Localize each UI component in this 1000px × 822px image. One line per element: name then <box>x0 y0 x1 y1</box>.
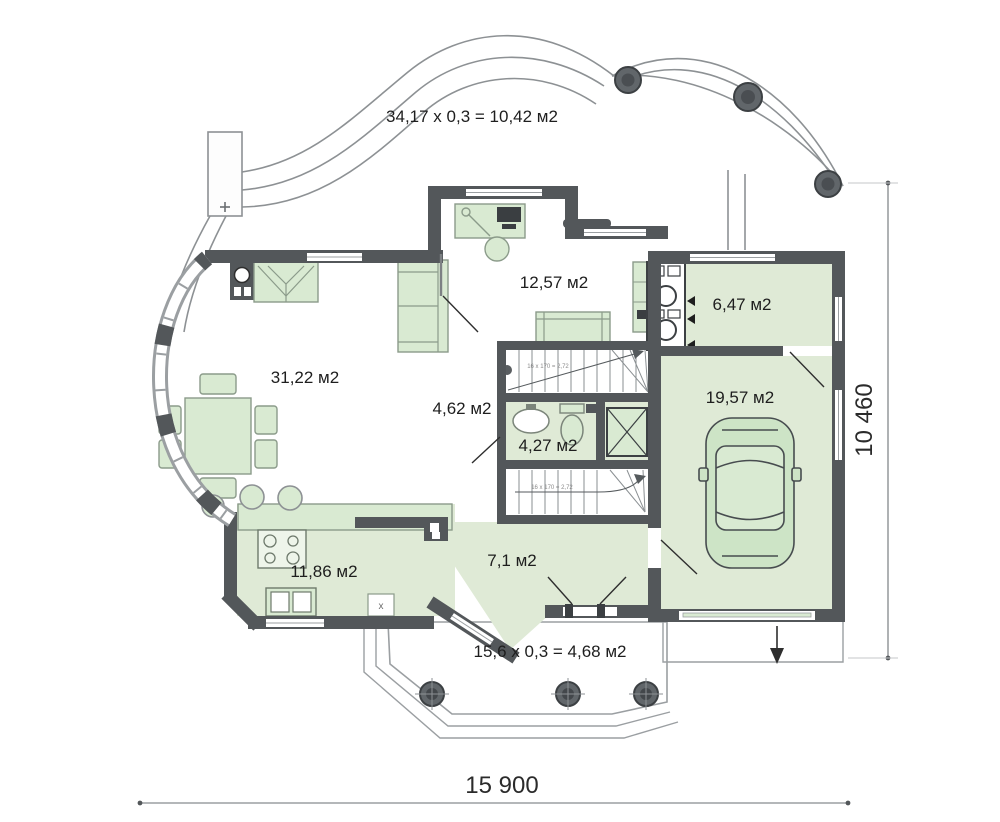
bathroom-area-label: 4,27 м2 <box>519 436 578 455</box>
kitchen-sink-icon <box>266 588 316 616</box>
study-sofa <box>536 312 610 345</box>
shower-icon <box>607 408 647 456</box>
terrace-area-label: 34,17 x 0,3 = 10,42 м2 <box>386 107 558 126</box>
kitchen-area-label: 11,86 м2 <box>290 562 357 581</box>
driveway <box>663 622 843 664</box>
entrance-arrow-icon <box>770 626 784 664</box>
car-icon <box>699 418 801 568</box>
entry-door-leaf <box>597 604 605 618</box>
fireplace <box>230 262 318 302</box>
dining-chair <box>200 374 236 394</box>
porch-area-label: 15,6 x 0,3 = 4,68 м2 <box>474 642 627 661</box>
desk-chair <box>485 237 509 261</box>
car-mirror <box>792 468 801 481</box>
column-icon <box>815 171 841 197</box>
hallway-garage-door-opening <box>648 528 661 568</box>
boiler-area-label: 6,47 м2 <box>713 295 772 314</box>
stairs-lower-flight <box>506 470 648 514</box>
hallway-area-label: 7,1 м2 <box>487 551 537 570</box>
stair-note-upper: 16 x 170 = 2,72 <box>527 364 569 370</box>
living-area-label: 31,22 м2 <box>271 368 339 387</box>
stairs-upper-flight <box>502 349 648 392</box>
floor-plan-page: x <box>0 0 1000 822</box>
column-icon <box>615 67 641 93</box>
dining-chair <box>255 440 277 468</box>
appliance-x-label: x <box>379 601 384 612</box>
garage-area-label: 19,57 м2 <box>706 388 774 407</box>
dining-chair <box>255 406 277 434</box>
sink-icon <box>513 409 549 433</box>
overall-height-dimension: 10 460 <box>851 383 878 456</box>
overall-width-dimension: 15 900 <box>465 772 538 799</box>
terrace-arc-outer <box>612 59 843 186</box>
bar-stool <box>278 486 302 510</box>
appliance-x-box: x <box>368 594 394 616</box>
car-mirror <box>699 468 708 481</box>
study-area-label: 12,57 м2 <box>520 273 588 292</box>
stair-note-lower: 16 x 170 = 2,72 <box>531 485 573 491</box>
hall-area-label: 4,62 м2 <box>433 399 492 418</box>
bar-stool <box>240 485 264 509</box>
dining-table <box>185 398 251 474</box>
entry-door-leaf <box>565 604 573 618</box>
computer-icon <box>497 207 521 222</box>
column-icon <box>734 83 762 111</box>
